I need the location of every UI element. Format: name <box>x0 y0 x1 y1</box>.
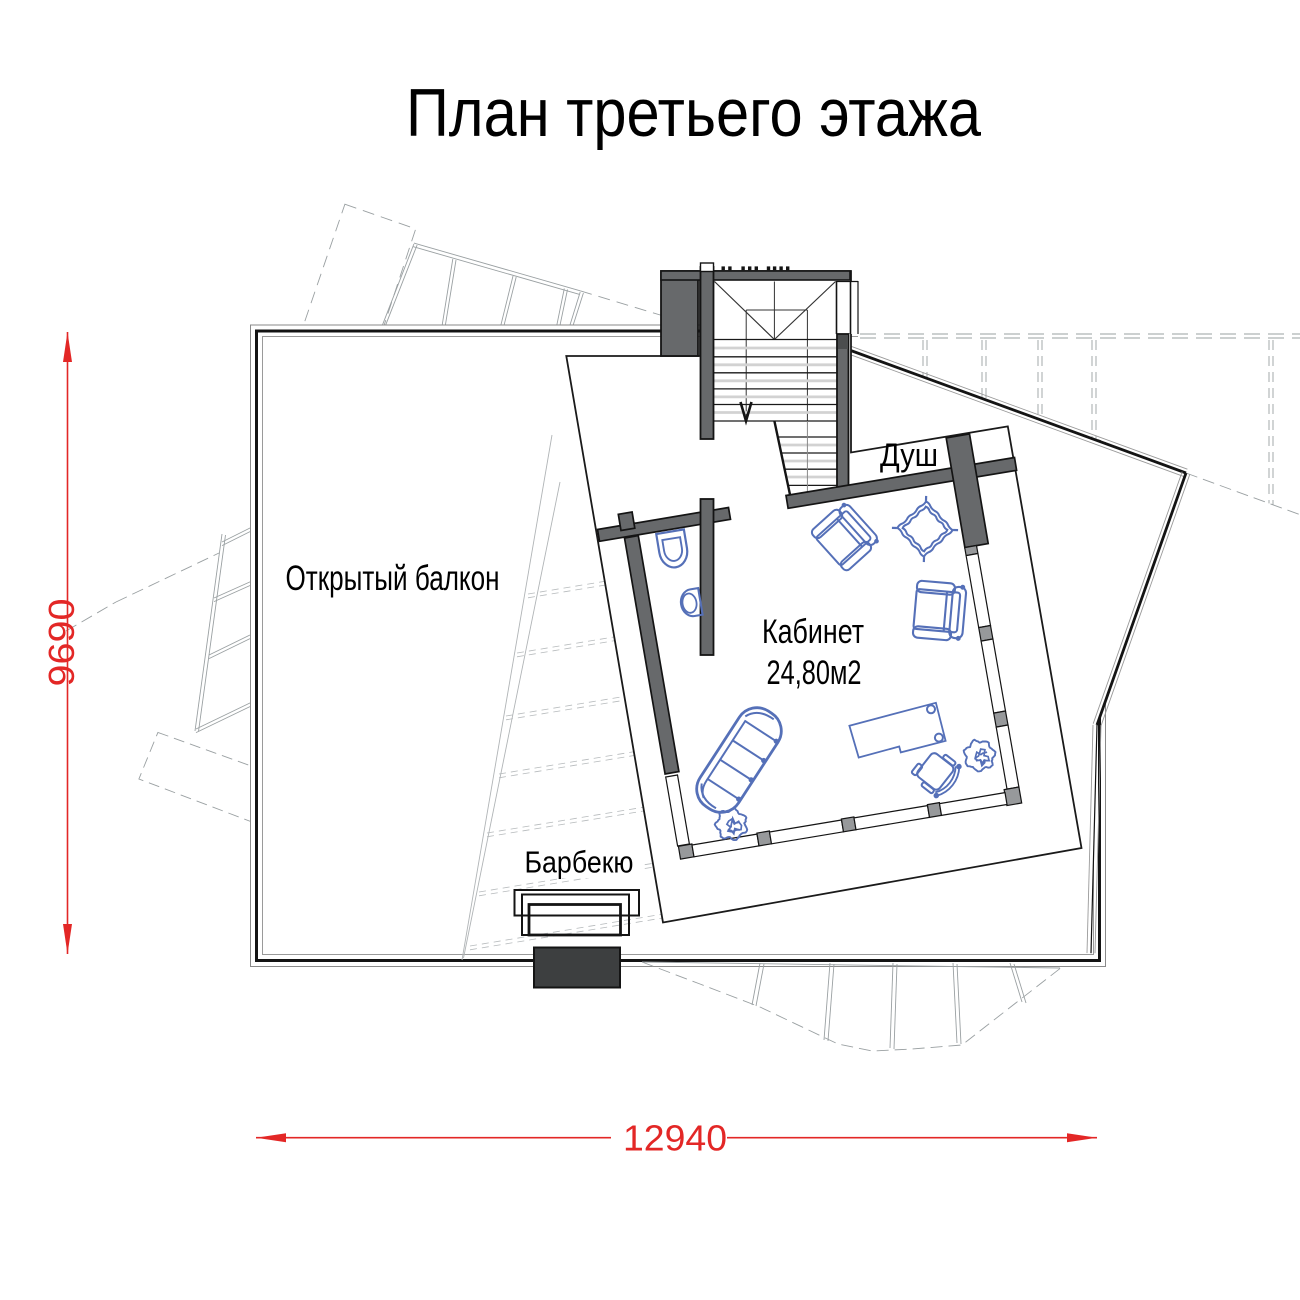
svg-text:Кабинет: Кабинет <box>762 613 864 651</box>
svg-text:24,80м2: 24,80м2 <box>767 654 862 692</box>
svg-text:9690: 9690 <box>41 599 82 687</box>
svg-text:Барбекю: Барбекю <box>525 845 634 880</box>
svg-text:План третьего этажа: План третьего этажа <box>406 75 981 151</box>
svg-text:12940: 12940 <box>623 1118 727 1159</box>
svg-text:Душ: Душ <box>880 437 938 473</box>
svg-text:Открытый балкон: Открытый балкон <box>286 559 500 598</box>
